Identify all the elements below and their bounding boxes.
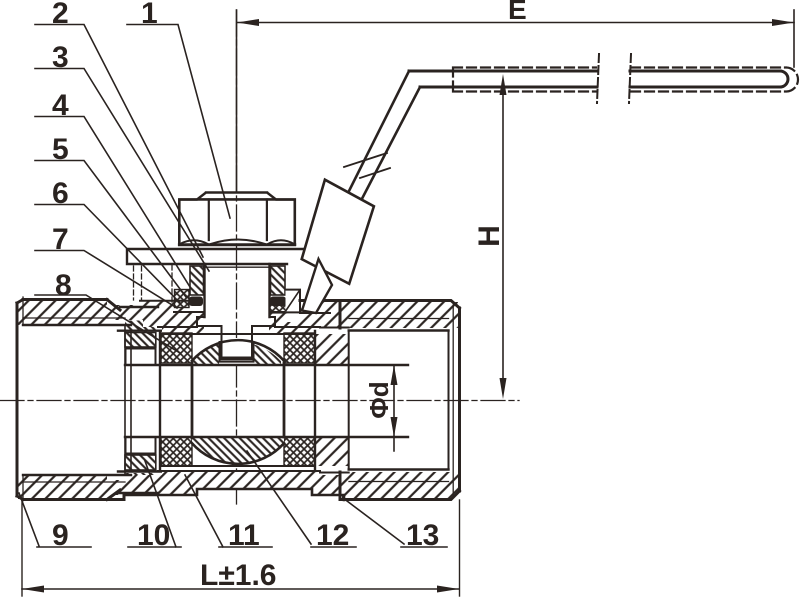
- svg-text:8: 8: [55, 269, 72, 302]
- svg-text:H: H: [473, 225, 506, 247]
- svg-text:Φd: Φd: [364, 381, 394, 418]
- svg-text:L±1.6: L±1.6: [200, 559, 277, 592]
- svg-text:2: 2: [52, 0, 69, 30]
- svg-text:1: 1: [141, 0, 158, 30]
- svg-text:E: E: [508, 0, 527, 25]
